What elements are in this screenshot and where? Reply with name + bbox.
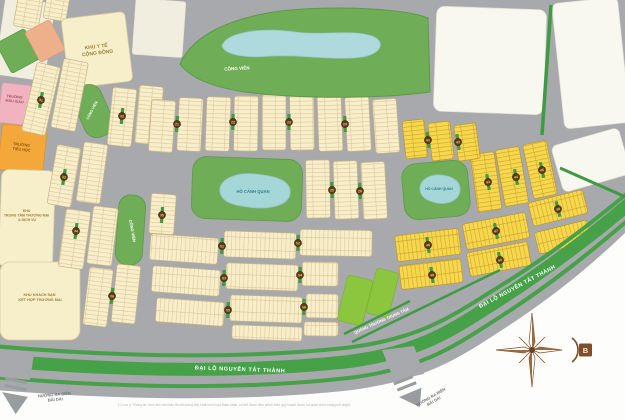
park-pond (222, 30, 380, 58)
city-block (234, 96, 259, 151)
marker-number: 50 (498, 258, 503, 263)
city-block (317, 96, 343, 152)
marker-number: 54 (298, 273, 302, 277)
city-block (304, 322, 338, 337)
city-block (305, 160, 330, 218)
city-block (372, 98, 400, 154)
city-block (205, 97, 231, 152)
city-block (333, 161, 359, 220)
compass-north-letter: B (583, 346, 589, 355)
marker-number: 43 (486, 180, 491, 185)
marker-number: 42 (456, 140, 461, 145)
marker-number: 22 (231, 120, 235, 124)
marker-number: 25 (330, 188, 334, 192)
marker-number: 49 (430, 273, 435, 278)
city-block (302, 262, 338, 287)
marker-number: 31 (39, 98, 44, 103)
marker-number: 47 (494, 229, 499, 234)
city-block (149, 234, 219, 265)
city-block (433, 6, 547, 115)
city-block (230, 295, 303, 323)
exit-road-southwest (0, 350, 34, 380)
city-block (402, 119, 428, 159)
lake-label-east: HỒ CẢNH QUAN (425, 186, 453, 191)
city-block (148, 99, 176, 153)
marker-number: 34 (74, 229, 78, 233)
kindergarten-label: TRƯỜNG MẪU GIÁO (5, 93, 24, 104)
marker-number: 45 (540, 168, 545, 173)
marker-number: 46 (426, 243, 431, 248)
marker-number: 24 (343, 122, 347, 126)
marker-number: 33 (62, 175, 67, 180)
marker-number: 21 (175, 122, 179, 126)
city-block (226, 263, 299, 291)
marker-number: 51 (220, 244, 224, 248)
marker-number: 26 (358, 189, 362, 193)
marker-number: 44 (514, 175, 519, 180)
compass-center (529, 347, 535, 353)
city-block (155, 298, 225, 327)
hotel-area-label: KHU KHÁCH SẠN KẾT HỢP THƯƠNG MẠI (18, 292, 61, 302)
city-block (306, 294, 338, 319)
marker-number: 53 (222, 276, 226, 280)
city-block (428, 121, 454, 161)
marker-number: 52 (296, 241, 300, 245)
marker-number: 55 (226, 308, 230, 312)
marker-number: 36 (110, 294, 114, 298)
city-block (232, 325, 302, 341)
map-canvas: KHU Y TẾ CỘNG ĐỒNG TRƯỜNG MẪU GIÁO TRƯỜN… (0, 0, 625, 420)
marker-number: 35 (160, 213, 164, 217)
primary-school-label: TRƯỜNG TIỂU HỌC (12, 141, 31, 153)
city-block (132, 0, 186, 58)
city-block (552, 0, 625, 129)
city-block (262, 95, 286, 150)
marker-number: 41 (426, 138, 430, 142)
masterplan-map: KHU Y TẾ CỘNG ĐỒNG TRƯỜNG MẪU GIÁO TRƯỜN… (0, 0, 625, 420)
map-disclaimer: (*) Lưu ý: Thông tin, hình ảnh trên bản … (118, 403, 351, 407)
city-block (151, 266, 221, 297)
city-block (300, 229, 372, 256)
marker-number: 23 (287, 120, 291, 124)
marker-number: 32 (120, 114, 124, 118)
city-block (224, 231, 297, 259)
lake-label-west: HỒ CẢNH QUAN (236, 189, 269, 194)
marker-number: 56 (302, 305, 306, 309)
city-block (361, 161, 388, 219)
city-block (290, 95, 315, 150)
